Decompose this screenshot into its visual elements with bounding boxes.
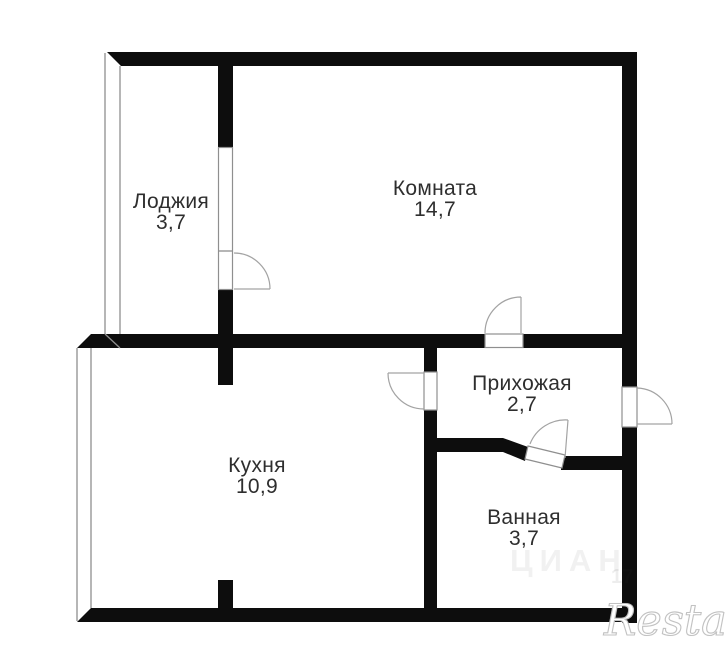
wall-right-lower <box>622 427 637 623</box>
watermark-brand: Restate <box>604 596 725 646</box>
room-area-room: 14,7 <box>365 199 505 220</box>
wall-right-upper <box>622 52 637 387</box>
wall-bathroom-diagonal <box>503 438 528 461</box>
room-name-bathroom: Ванная <box>454 507 594 528</box>
room-label-kitchen: Кухня 10,9 <box>187 455 327 497</box>
room-door-swing <box>485 297 521 333</box>
room-label-hallway: Прихожая 2,7 <box>452 373 592 415</box>
room-name-room: Комната <box>365 178 505 199</box>
bathroom-door-leaf <box>525 446 565 468</box>
floorplan-canvas: Лоджия 3,7 Комната 14,7 Кухня 10,9 Прихо… <box>0 0 725 646</box>
wall-loggia-divider-upper <box>218 66 233 147</box>
wall-kitchen-stub <box>218 580 233 608</box>
room-area-hallway: 2,7 <box>452 394 592 415</box>
wall-bathroom-left <box>430 438 503 452</box>
wall-middle-right <box>523 334 622 348</box>
room-label-room: Комната 14,7 <box>365 178 505 220</box>
entrance-door-swing <box>637 388 672 424</box>
wall-top <box>107 52 637 66</box>
kitchen-door-opening <box>424 372 437 410</box>
wall-kitchen-divider-upper <box>424 348 437 372</box>
room-area-kitchen: 10,9 <box>187 476 327 497</box>
room-door-opening <box>485 334 523 348</box>
watermark-code: 17 <box>611 566 633 589</box>
room-name-loggia: Лоджия <box>101 191 241 212</box>
door-swings <box>234 253 672 458</box>
wall-bottom <box>77 608 637 622</box>
wall-bathroom-right <box>561 456 622 470</box>
room-label-loggia: Лоджия 3,7 <box>101 191 241 233</box>
entrance-door-opening <box>622 387 637 427</box>
kitchen-door-swing <box>388 373 424 409</box>
room-area-loggia: 3,7 <box>101 212 241 233</box>
wall-middle-left <box>77 334 485 348</box>
room-name-hallway: Прихожая <box>452 373 592 394</box>
balcony-door-swing <box>234 253 270 289</box>
room-name-kitchen: Кухня <box>187 455 327 476</box>
wall-loggia-divider-lower <box>218 290 233 385</box>
